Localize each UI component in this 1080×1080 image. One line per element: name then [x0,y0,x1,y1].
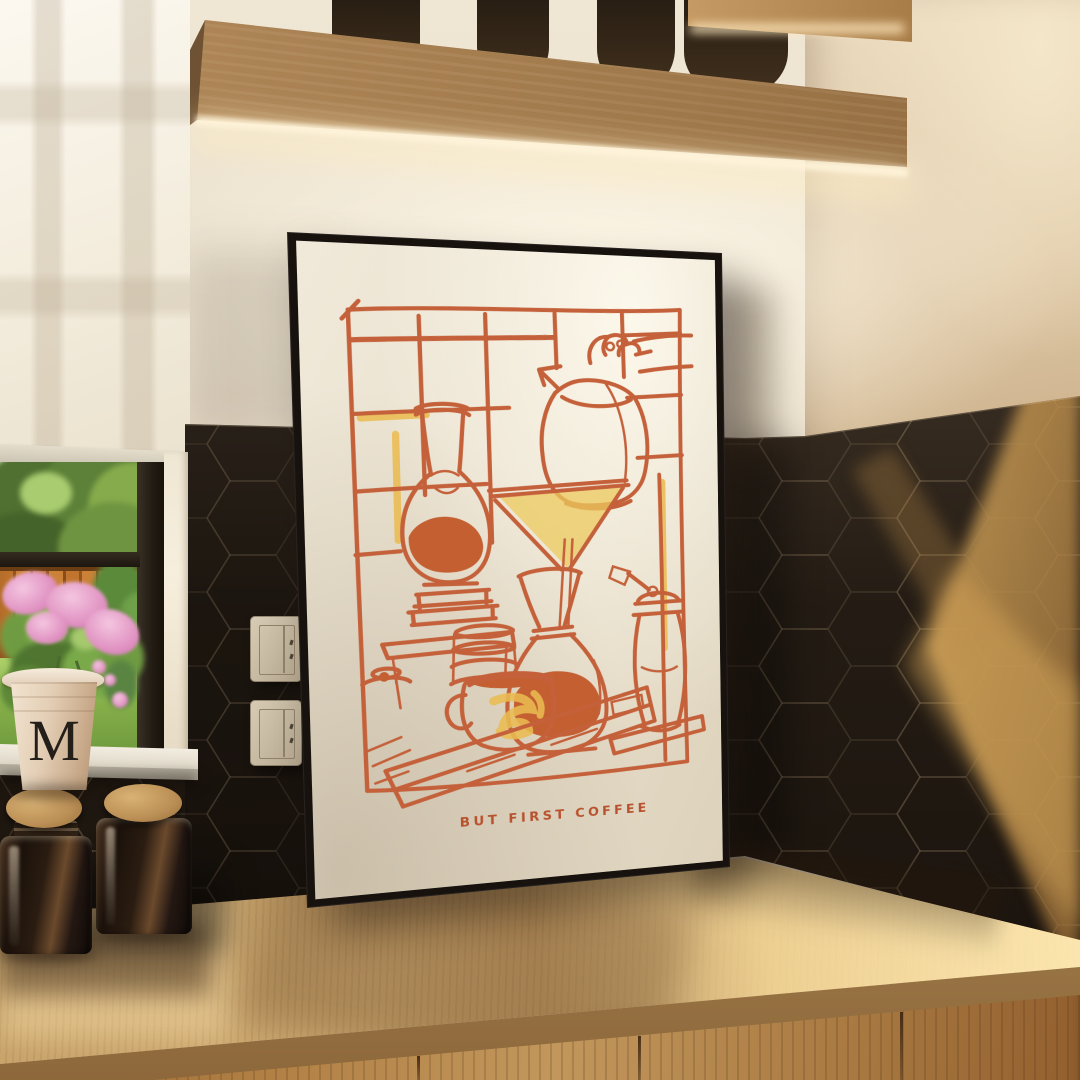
flower-pot: M [9,682,99,790]
jar-reflection [9,846,19,946]
poster-tile-shadow [726,440,790,860]
canister-jar-left [0,836,92,954]
coffee-sketch-illustration: BUT FIRST COFFEE [296,241,723,900]
canister-jar-right [96,818,192,934]
poster-wall-shadow [724,290,776,460]
light-switch-lower [250,700,302,766]
pink-flower [26,612,68,644]
poster-paper: BUT FIRST COFFEE [296,241,723,900]
cabinet-door-seam [900,1012,903,1080]
pink-flower-bud [104,674,116,686]
pot-monogram: M [9,712,99,770]
pink-flower-bud [112,692,128,708]
switch-divider [283,709,285,757]
switch-divider [283,625,285,673]
window-jamb [164,452,188,754]
switch-rocker [259,709,295,759]
framed-poster: BUT FIRST COFFEE [287,232,730,908]
jar-reflection [106,827,115,925]
switch-rocker [259,625,295,675]
flower-pot-group: M [0,560,162,796]
light-switch-upper [250,616,302,682]
pot-shadow [10,786,102,798]
cabinet-door-seam [638,1036,641,1080]
poster-caption: BUT FIRST COFFEE [460,800,650,830]
cabinet-door-seam [417,1056,420,1080]
kitchen-photo: M [0,0,1080,1080]
